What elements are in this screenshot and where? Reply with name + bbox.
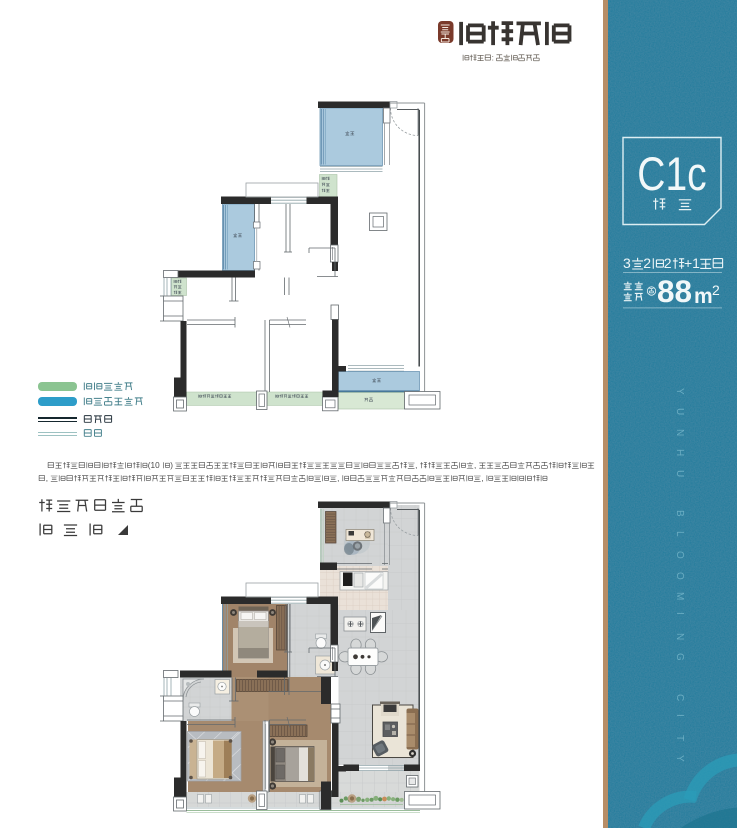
svg-text:+1: +1: [684, 255, 700, 271]
svg-text:2: 2: [712, 282, 720, 298]
svg-text:,: ,: [481, 474, 483, 483]
svg-text:,: ,: [474, 461, 476, 470]
svg-text:88: 88: [657, 273, 692, 309]
svg-text:2: 2: [643, 255, 651, 271]
svg-text:3: 3: [623, 255, 631, 271]
svg-text:2: 2: [664, 255, 672, 271]
svg-text:m: m: [694, 285, 713, 308]
